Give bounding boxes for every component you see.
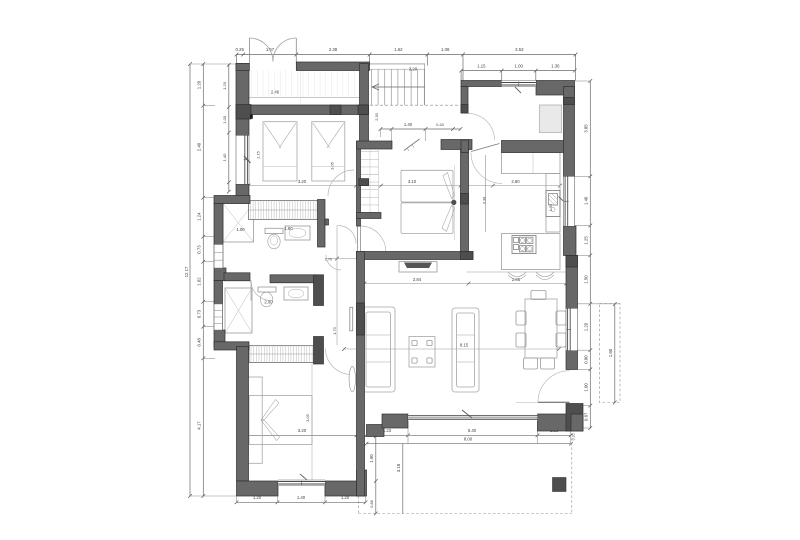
svg-text:1.20: 1.20: [222, 81, 227, 90]
svg-text:0.43: 0.43: [436, 122, 444, 127]
svg-text:12.17: 12.17: [184, 266, 189, 277]
svg-text:1.36: 1.36: [551, 63, 560, 68]
svg-text:0.73: 0.73: [197, 245, 202, 254]
svg-text:2.30: 2.30: [374, 112, 379, 120]
svg-text:2.40: 2.40: [197, 142, 202, 151]
svg-text:1.40: 1.40: [297, 495, 306, 500]
svg-text:1.40: 1.40: [404, 122, 413, 127]
svg-text:5.40: 5.40: [468, 428, 477, 433]
svg-text:3.10: 3.10: [408, 179, 417, 184]
svg-text:8.00: 8.00: [464, 437, 473, 442]
svg-text:1.60: 1.60: [608, 348, 613, 357]
svg-text:2.15: 2.15: [256, 151, 261, 159]
svg-text:1.20: 1.20: [197, 80, 202, 89]
svg-text:1.24: 1.24: [197, 212, 202, 221]
svg-text:1.02: 1.02: [197, 277, 202, 286]
svg-text:2.46: 2.46: [271, 90, 280, 95]
svg-text:1.40: 1.40: [584, 196, 589, 205]
svg-text:3.20: 3.20: [298, 428, 307, 433]
svg-text:0.88: 0.88: [370, 500, 374, 507]
svg-text:1.00: 1.00: [222, 115, 227, 124]
svg-text:1.70: 1.70: [332, 326, 337, 334]
svg-text:1.25: 1.25: [584, 236, 589, 245]
svg-text:0.16: 0.16: [572, 434, 576, 441]
svg-text:1.62: 1.62: [394, 47, 403, 52]
svg-text:3.38: 3.38: [482, 197, 487, 205]
svg-text:3.20: 3.20: [409, 67, 418, 72]
svg-text:0.80: 0.80: [584, 355, 589, 364]
svg-text:1.50: 1.50: [584, 275, 589, 284]
svg-text:0.87: 0.87: [584, 412, 589, 421]
svg-text:8.15: 8.15: [460, 342, 469, 347]
svg-text:0.48: 0.48: [197, 338, 202, 347]
svg-text:0.25: 0.25: [236, 47, 245, 52]
svg-text:2.38: 2.38: [329, 47, 338, 52]
svg-text:4.17: 4.17: [197, 421, 202, 430]
svg-text:1.40: 1.40: [222, 153, 227, 162]
svg-text:1.80: 1.80: [284, 226, 293, 231]
svg-text:0.73: 0.73: [197, 309, 202, 318]
svg-text:2.00: 2.00: [264, 299, 273, 304]
svg-text:1.15: 1.15: [477, 63, 486, 68]
svg-text:3.05: 3.05: [305, 414, 310, 422]
svg-text:1.00: 1.00: [584, 383, 589, 392]
svg-text:1.20: 1.20: [584, 322, 589, 331]
svg-text:3.18: 3.18: [396, 463, 401, 472]
svg-text:3.85: 3.85: [584, 124, 589, 133]
svg-text:2.80: 2.80: [511, 179, 520, 184]
svg-text:1.90: 1.90: [369, 454, 374, 463]
svg-text:3.05: 3.05: [330, 162, 335, 170]
svg-text:1.00: 1.00: [515, 63, 524, 68]
svg-text:3.20: 3.20: [298, 179, 307, 184]
svg-text:3.53: 3.53: [515, 47, 524, 52]
svg-text:1.00: 1.00: [236, 227, 245, 232]
svg-text:2.84: 2.84: [413, 277, 422, 282]
svg-text:1.08: 1.08: [441, 47, 450, 52]
